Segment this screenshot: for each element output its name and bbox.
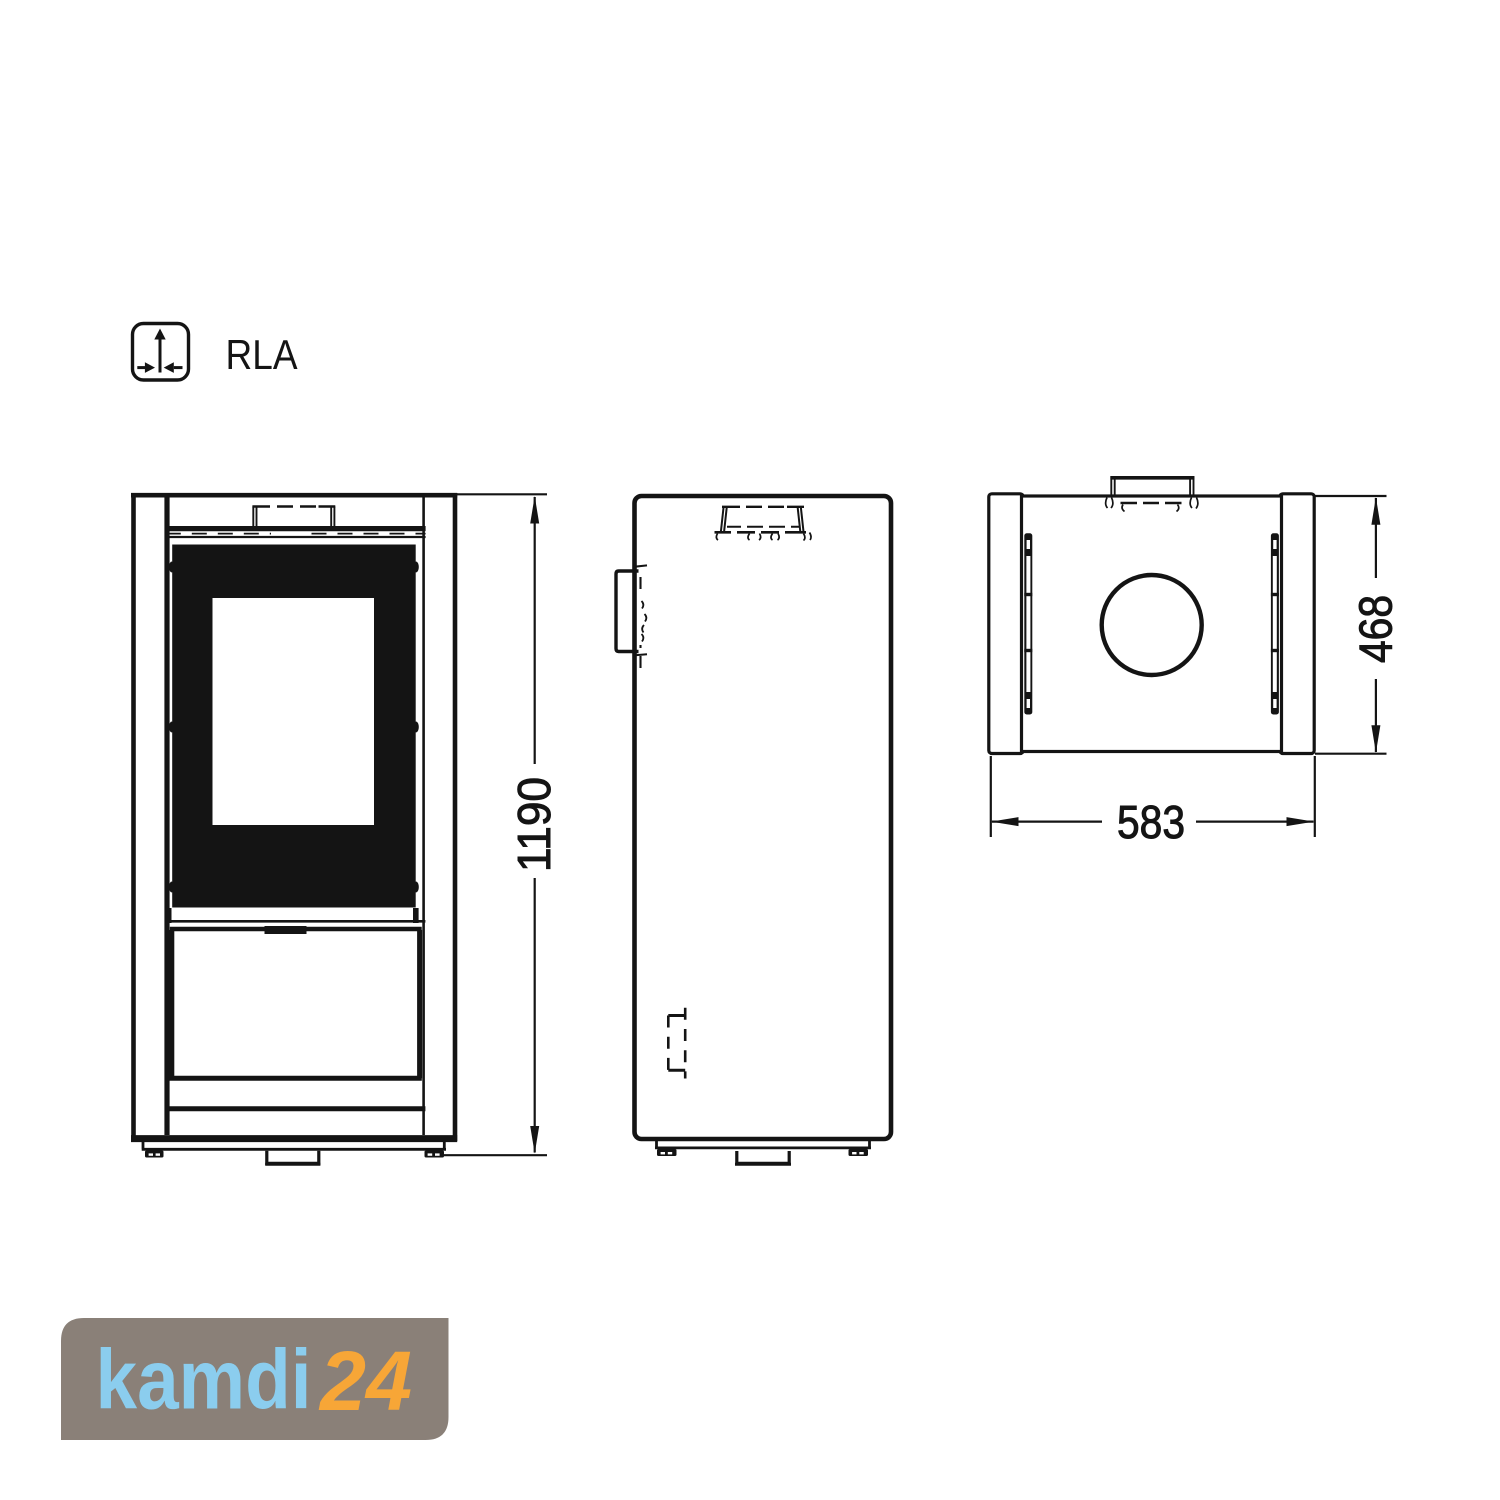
svg-text:kamdi: kamdi bbox=[96, 1333, 312, 1427]
svg-text:1190: 1190 bbox=[508, 777, 560, 872]
svg-text:468: 468 bbox=[1349, 595, 1401, 663]
svg-text:RLA: RLA bbox=[226, 331, 298, 378]
svg-text:24: 24 bbox=[318, 1334, 412, 1428]
svg-text:583: 583 bbox=[1117, 796, 1185, 848]
